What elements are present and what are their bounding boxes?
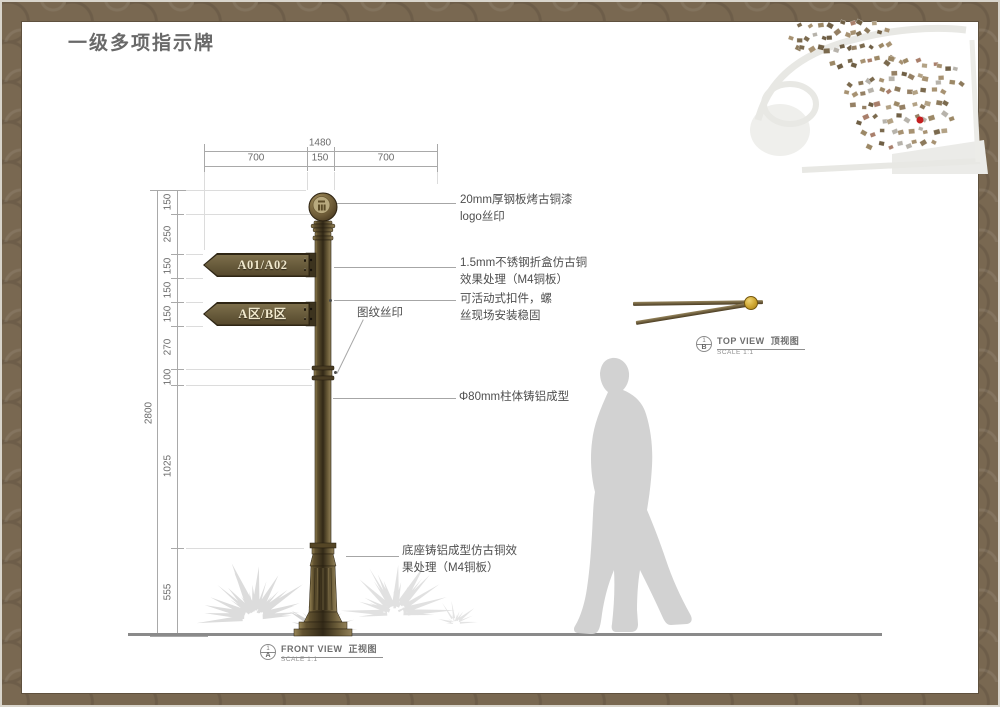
- dim-left-seg: 150: [163, 258, 174, 275]
- extension-line: [186, 254, 203, 255]
- annotation-line: 20mm厚钢板烤古铜漆: [460, 192, 572, 209]
- plate-1-label: A01/A02: [221, 253, 304, 277]
- dim-tick: [171, 278, 184, 279]
- annotation-pattern: 图纹丝印: [357, 305, 403, 322]
- dim-left-seg: 1025: [163, 455, 174, 477]
- dim-tick: [334, 147, 335, 171]
- symbol-sheet: A: [261, 652, 275, 659]
- annotation-line: 果处理（M4铜板）: [402, 560, 517, 577]
- annotation-line: 可活动式扣件，螺: [460, 291, 552, 308]
- dim-tick: [171, 214, 184, 215]
- dim-left-seg: 150: [163, 194, 174, 211]
- map-marker-dot: [917, 117, 924, 124]
- topview-scale: SCALE 1:1: [717, 349, 754, 356]
- dim-tick: [204, 144, 205, 174]
- leader-line: [346, 556, 399, 557]
- frontview-title-en: FRONT VIEW: [281, 644, 343, 654]
- ground-line: [128, 633, 882, 636]
- dim-tick: [307, 147, 308, 171]
- dim-tick: [171, 254, 184, 255]
- dim-top-700-right: 700: [378, 153, 395, 164]
- drawing-stage: 一级多项指示牌 1480 700 150 700: [0, 0, 1000, 707]
- site-plan-map: [742, 12, 990, 180]
- dim-line-top-segments: [204, 166, 437, 167]
- annotation-pole: Φ80mm柱体铸铝成型: [459, 389, 569, 406]
- mid-collar: [312, 366, 334, 380]
- dim-tick: [171, 326, 184, 327]
- annotation-line: 丝现场安装稳固: [460, 308, 552, 325]
- leader-line: [333, 398, 456, 399]
- dim-tick: [437, 144, 438, 174]
- annotation-finial: 20mm厚钢板烤古铜漆 logo丝印: [460, 192, 572, 226]
- human-silhouette: [556, 352, 706, 636]
- annotation-plate: 1.5mm不锈钢折盒仿古铜 效果处理（M4铜板）: [460, 255, 587, 289]
- dim-left-seg: 150: [163, 282, 174, 299]
- annotation-clip: 可活动式扣件，螺 丝现场安装稳固: [460, 291, 552, 325]
- annotation-line: 底座铸铝成型仿古铜效: [402, 543, 517, 560]
- topview-title: TOP VIEW 顶视图: [717, 334, 805, 350]
- annotation-line: 1.5mm不锈钢折盒仿古铜: [460, 255, 587, 272]
- frontview-title-zh: 正视图: [349, 644, 378, 654]
- cast-base: [294, 543, 352, 636]
- dim-left-seg: 150: [163, 306, 174, 323]
- sheet: 一级多项指示牌 1480 700 150 700: [0, 0, 1000, 707]
- extension-line: [186, 326, 203, 327]
- dim-left-seg: 270: [163, 339, 174, 356]
- extension-line: [204, 172, 205, 250]
- screw-dot: [304, 318, 307, 321]
- leader-line: [337, 203, 456, 204]
- dim-left-seg: 250: [163, 226, 174, 243]
- frontview-scale: SCALE 1:1: [281, 656, 318, 663]
- direction-plate-1: A01/A02: [203, 253, 310, 277]
- annotation-line: logo丝印: [460, 209, 572, 226]
- topview-pole-knob: [744, 296, 758, 310]
- dim-tick: [171, 302, 184, 303]
- map-houses: [788, 19, 965, 151]
- topview-title-en: TOP VIEW: [717, 336, 765, 346]
- dim-top-150: 150: [312, 153, 329, 164]
- extension-line: [437, 172, 438, 184]
- extension-line: [186, 302, 203, 303]
- direction-plate-2: A区/B区: [203, 302, 310, 326]
- dim-top-700-left: 700: [248, 153, 265, 164]
- dim-left-seg: 100: [163, 369, 174, 386]
- pole-shaft: [315, 240, 331, 545]
- symbol-sheet: B: [697, 344, 711, 351]
- topview-symbol: 1 B: [696, 336, 712, 352]
- plate-2-label: A区/B区: [221, 302, 304, 326]
- annotation-line: Φ80mm柱体铸铝成型: [459, 389, 569, 406]
- page-title: 一级多项指示牌: [68, 28, 215, 55]
- screw-dot: [304, 308, 307, 311]
- screw-dot: [304, 269, 307, 272]
- leader-line: [334, 267, 456, 268]
- frontview-symbol: 1 A: [260, 644, 276, 660]
- finial-collar: [311, 221, 335, 240]
- annotation-base: 底座铸铝成型仿古铜效 果处理（M4铜板）: [402, 543, 517, 577]
- dim-left-overall: 2800: [144, 402, 155, 424]
- dim-line-left-overall: [157, 190, 158, 636]
- leader-dot: [329, 299, 332, 302]
- dim-top-total: 1480: [309, 138, 331, 149]
- annotation-line: 图纹丝印: [357, 305, 403, 322]
- annotation-line: 效果处理（M4铜板）: [460, 272, 587, 289]
- topview-title-zh: 顶视图: [771, 336, 800, 346]
- screw-dot: [304, 259, 307, 262]
- extension-line: [186, 278, 203, 279]
- leader-line: [334, 300, 456, 301]
